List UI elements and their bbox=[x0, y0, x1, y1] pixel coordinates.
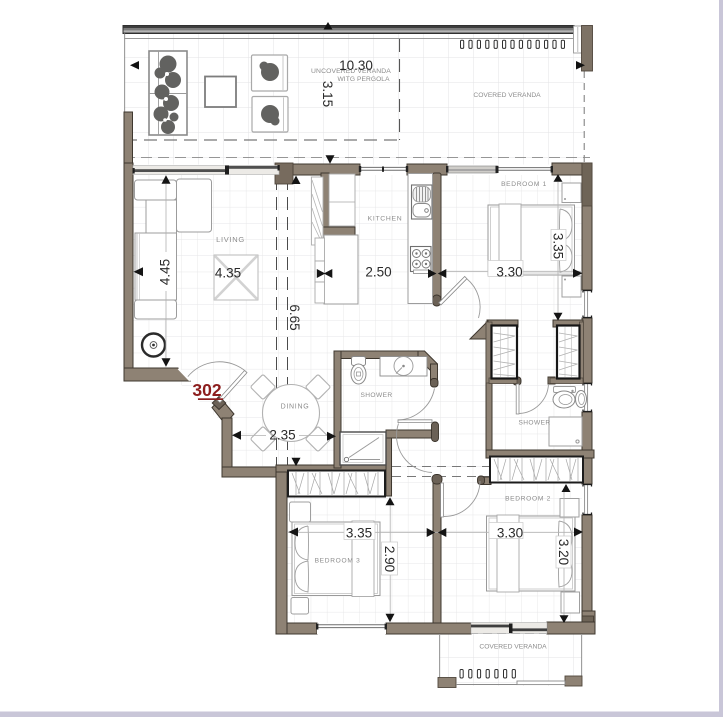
svg-text:KITCHEN: KITCHEN bbox=[368, 216, 403, 223]
svg-text:3.35: 3.35 bbox=[346, 526, 372, 541]
svg-text:COVERED VERANDA: COVERED VERANDA bbox=[473, 92, 541, 99]
svg-text:DINING: DINING bbox=[281, 404, 310, 411]
svg-text:6.65: 6.65 bbox=[287, 304, 302, 330]
svg-text:2.90: 2.90 bbox=[382, 546, 397, 572]
svg-text:3.20: 3.20 bbox=[556, 539, 571, 565]
svg-text:COVERED VERANDA: COVERED VERANDA bbox=[479, 644, 547, 651]
svg-text:LIVING: LIVING bbox=[216, 235, 245, 244]
svg-text:SHOWER: SHOWER bbox=[360, 392, 392, 399]
svg-text:302: 302 bbox=[192, 380, 221, 400]
svg-text:4.35: 4.35 bbox=[215, 266, 241, 281]
svg-text:3.35: 3.35 bbox=[551, 233, 566, 259]
svg-text:BEDROOM 1: BEDROOM 1 bbox=[501, 181, 547, 188]
svg-text:10.30: 10.30 bbox=[339, 58, 373, 73]
svg-text:2.50: 2.50 bbox=[365, 265, 391, 280]
svg-text:BEDROOM 2: BEDROOM 2 bbox=[505, 496, 551, 503]
svg-text:3.15: 3.15 bbox=[320, 81, 335, 107]
svg-text:BEDROOM 3: BEDROOM 3 bbox=[315, 558, 361, 565]
svg-text:4.45: 4.45 bbox=[158, 259, 173, 285]
svg-text:3.30: 3.30 bbox=[497, 526, 523, 541]
svg-text:SHOWER: SHOWER bbox=[518, 420, 550, 427]
svg-text:3.30: 3.30 bbox=[496, 265, 522, 280]
svg-text:WITG PERGOLA: WITG PERGOLA bbox=[337, 76, 390, 83]
svg-text:2.35: 2.35 bbox=[269, 428, 295, 443]
